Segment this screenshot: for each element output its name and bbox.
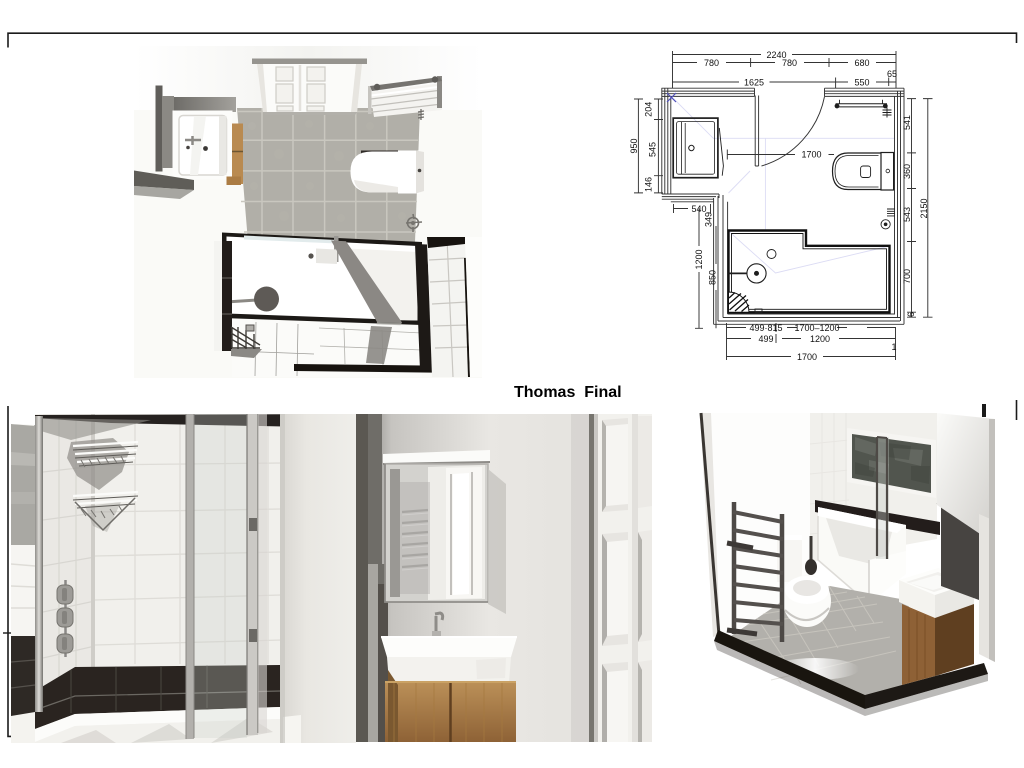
svg-text:550: 550 [854, 77, 869, 87]
svg-text:1: 1 [891, 342, 896, 352]
svg-text:950: 950 [629, 138, 639, 153]
svg-text:543: 543 [902, 207, 912, 222]
svg-text:360: 360 [902, 164, 912, 179]
svg-text:1700: 1700 [801, 150, 821, 160]
svg-text:204: 204 [644, 102, 654, 117]
svg-text:1625: 1625 [744, 77, 764, 87]
svg-text:1200: 1200 [810, 334, 830, 344]
svg-text:541: 541 [902, 115, 912, 130]
svg-text:780: 780 [704, 58, 719, 68]
svg-text:1200: 1200 [694, 249, 704, 269]
svg-text:680: 680 [854, 58, 869, 68]
svg-text:700: 700 [902, 269, 912, 284]
svg-text:2150: 2150 [919, 198, 929, 218]
svg-text:499·815: 499·815 [749, 323, 782, 333]
svg-text:499: 499 [758, 334, 773, 344]
svg-text:1700: 1700 [797, 352, 817, 362]
svg-text:349: 349 [704, 212, 714, 227]
svg-text:545: 545 [648, 142, 658, 157]
svg-text:146: 146 [644, 177, 654, 192]
svg-text:1700–1200: 1700–1200 [794, 323, 839, 333]
svg-text:6: 6 [906, 312, 916, 317]
svg-text:850: 850 [708, 270, 718, 285]
svg-text:780: 780 [782, 58, 797, 68]
